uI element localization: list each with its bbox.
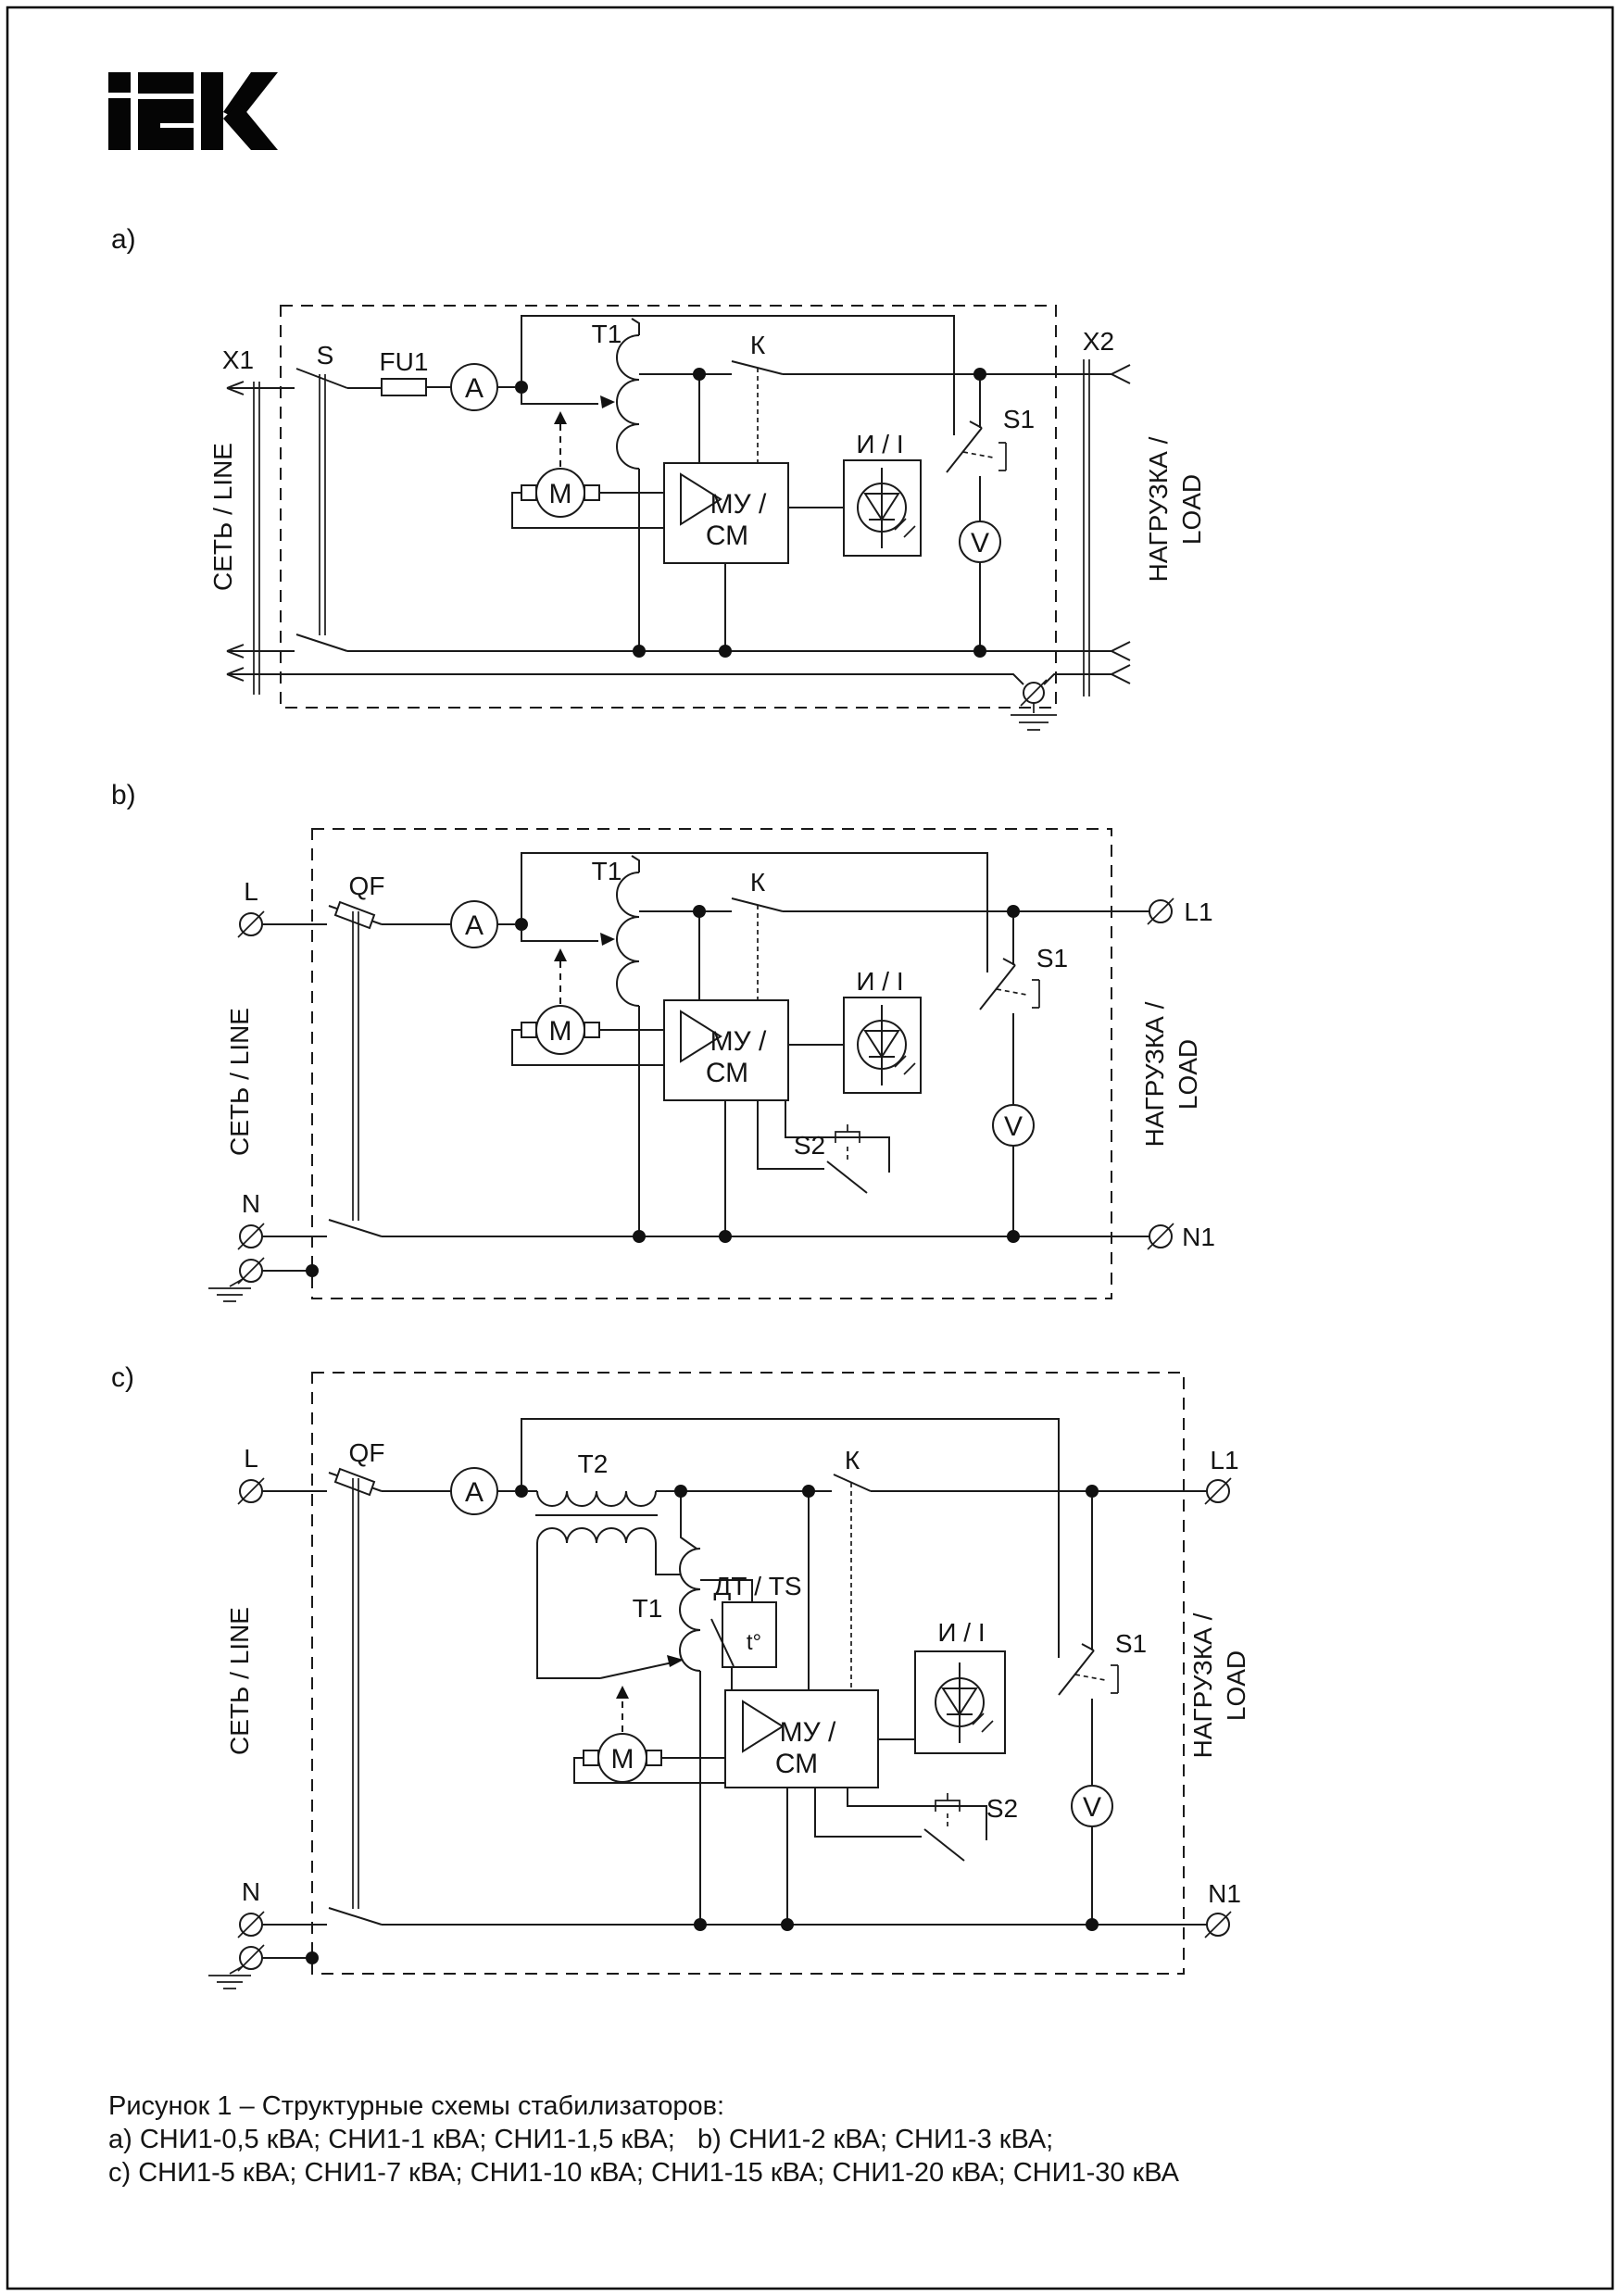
breaker-qf-label: QF	[349, 872, 385, 900]
autotransformer-t1-coil	[617, 335, 639, 469]
motor-letter-b: М	[549, 1016, 572, 1047]
terminal-l1-label-c: L1	[1210, 1446, 1238, 1474]
transformer-t2-primary	[537, 1491, 656, 1506]
mu-label-1-c: МУ /	[780, 1717, 836, 1748]
load-side-label-2-b: LOAD	[1174, 1039, 1202, 1110]
s1-label-c: S1	[1115, 1629, 1147, 1658]
earth-icon-b	[208, 1279, 251, 1301]
terminal-n-label-c: N	[242, 1877, 260, 1906]
indicator-label: И / I	[856, 430, 903, 458]
terminal-l-label-c: L	[244, 1444, 258, 1473]
terminal-l1-label: L1	[1184, 897, 1212, 926]
indicator-label-b: И / I	[856, 967, 903, 996]
fuse-label: FU1	[380, 347, 429, 376]
contact-k-label-b: К	[750, 868, 766, 897]
load-side-label-2-c: LOAD	[1222, 1650, 1250, 1721]
transformer-t2-secondary	[537, 1528, 656, 1543]
terminal-l-label: L	[244, 877, 258, 906]
t1-label-c: Т1	[633, 1594, 663, 1623]
iek-logo: IEK	[108, 72, 278, 150]
breaker-qf-body-c	[335, 1469, 374, 1495]
breaker-qf-body	[335, 902, 374, 928]
schematic-figure: IEK a)	[0, 0, 1620, 2296]
mu-label-1: МУ /	[710, 489, 767, 520]
mu-label-1-b: МУ /	[710, 1026, 767, 1057]
line-side-label-c: СЕТЬ / LINE	[225, 1607, 254, 1755]
fuse-fu1	[382, 379, 426, 395]
autotransformer-t1-coil-c	[680, 1549, 700, 1671]
ammeter-letter-b: A	[465, 910, 483, 941]
load-side-label-1-b: НАГРУЗКА /	[1140, 1001, 1169, 1147]
t2-label: Т2	[578, 1449, 609, 1478]
autotransformer-t1-coil-b	[617, 872, 639, 1006]
enclosure-dashed-c	[312, 1373, 1184, 1974]
wires-a	[227, 316, 1130, 730]
document-page: IEK a)	[0, 0, 1620, 2296]
terminal-n1-label: N1	[1182, 1223, 1215, 1251]
mu-label-2: СМ	[706, 521, 748, 551]
load-side-label-1: НАГРУЗКА /	[1144, 436, 1173, 582]
line-side-label: СЕТЬ / LINE	[208, 443, 237, 591]
temp-sensor-tdeg: t°	[747, 1630, 761, 1655]
contact-k-label: К	[750, 331, 766, 359]
mu-label-2-c: СМ	[775, 1749, 818, 1779]
figure-caption: Рисунок 1 – Структурные схемы стабилизат…	[108, 2091, 1180, 2188]
terminal-x2-label: X2	[1083, 327, 1114, 356]
s2-label-c: S2	[986, 1794, 1018, 1823]
ammeter-letter: A	[465, 373, 483, 404]
figure-label-b: b)	[111, 780, 136, 810]
terminal-n1-label-c: N1	[1208, 1879, 1241, 1908]
mu-label-2-b: СМ	[706, 1058, 748, 1088]
terminal-x1-label: X1	[222, 345, 254, 374]
t1-label-b: Т1	[592, 857, 622, 885]
indicator-label-c: И / I	[937, 1618, 985, 1647]
diagram-c: c)	[111, 1362, 1250, 1989]
s1-label: S1	[1003, 405, 1035, 433]
caption-line-3: c) СНИ1-5 кВА; СНИ1-7 кВА; СНИ1-10 кВА; …	[108, 2158, 1180, 2188]
wires-c	[208, 1419, 1231, 1989]
caption-line-1: Рисунок 1 – Структурные схемы стабилизат…	[108, 2091, 724, 2121]
wires-b	[208, 853, 1174, 1301]
wiper-arrow-icon-b	[600, 933, 615, 946]
figure-label-c: c)	[111, 1362, 134, 1393]
voltmeter-letter: V	[971, 528, 989, 558]
wiper-arrow-icon	[600, 395, 615, 408]
voltmeter-letter-c: V	[1083, 1792, 1101, 1823]
load-side-label-1-c: НАГРУЗКА /	[1188, 1612, 1217, 1758]
s1-label-b: S1	[1036, 944, 1068, 972]
t1-label: Т1	[592, 320, 622, 348]
ammeter-letter-c: A	[465, 1477, 483, 1508]
temp-sensor-label: ДТ / TS	[713, 1572, 801, 1600]
breaker-qf-label-c: QF	[349, 1438, 385, 1467]
diagram-b: b)	[111, 780, 1215, 1301]
earth-icon-c	[208, 1966, 251, 1989]
voltmeter-letter-b: V	[1004, 1111, 1023, 1142]
drive-arrow-icon	[554, 411, 567, 424]
s2-label-b: S2	[794, 1131, 825, 1160]
terminal-n-label: N	[242, 1189, 260, 1218]
load-side-label-2: LOAD	[1177, 474, 1206, 545]
t1-top-hook	[632, 319, 639, 335]
contact-k-label-c: К	[845, 1446, 860, 1474]
contact-k-blade-c	[834, 1474, 871, 1491]
caption-line-2: a) СНИ1-0,5 кВА; СНИ1-1 кВА; СНИ1-1,5 кВ…	[108, 2125, 1053, 2154]
figure-label-a: a)	[111, 224, 136, 255]
line-side-label-b: СЕТЬ / LINE	[225, 1008, 254, 1156]
diagram-a: a)	[111, 224, 1206, 730]
switch-s-label: S	[317, 341, 334, 370]
motor-letter-c: М	[611, 1744, 634, 1775]
motor-letter: М	[549, 479, 572, 509]
